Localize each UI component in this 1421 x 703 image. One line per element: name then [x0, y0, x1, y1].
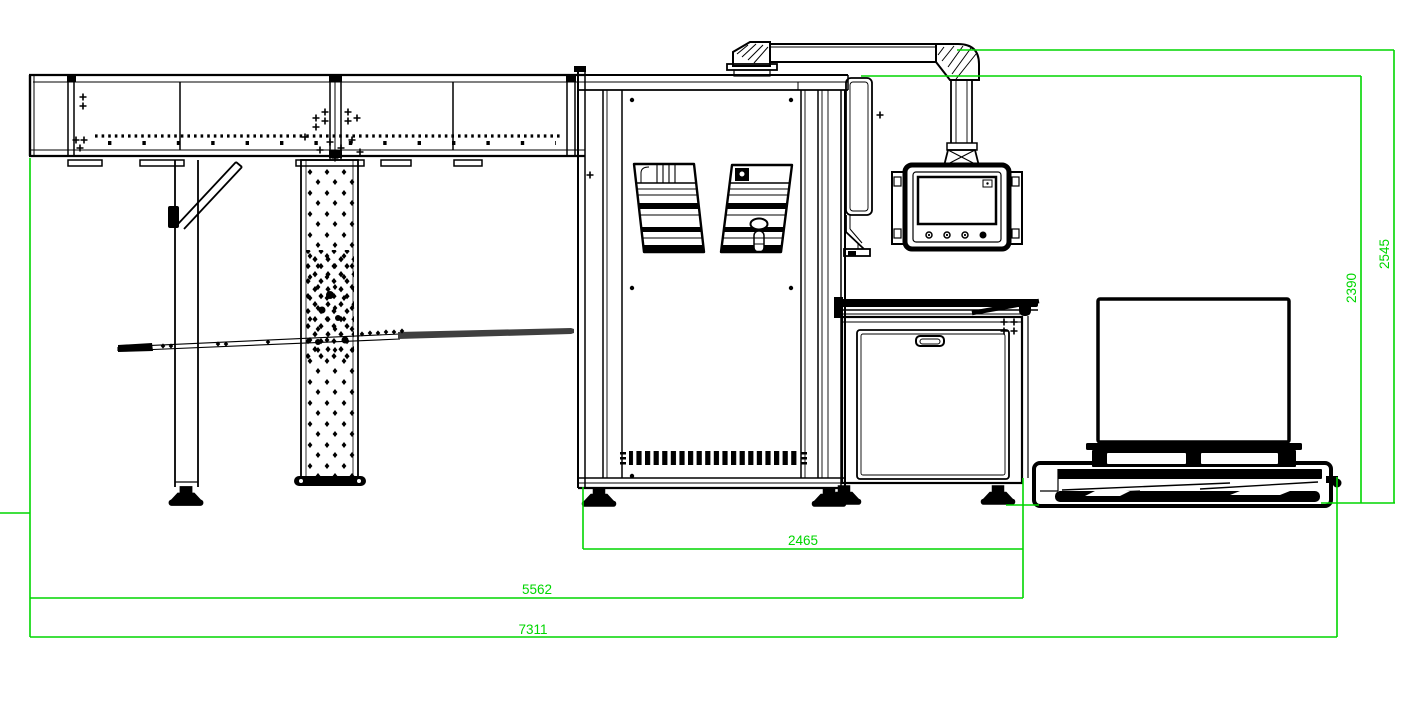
cabinet-door	[857, 330, 1009, 479]
dim-label-2465: 2465	[788, 533, 818, 548]
elevation-drawing: 2465 5562 7311 2390 2545	[0, 0, 1421, 703]
perforated-column	[294, 160, 366, 486]
hmi-monitor	[892, 165, 1022, 249]
ventilation-grille	[620, 451, 807, 465]
machine-foot-left	[583, 488, 616, 506]
hmi-screen	[918, 177, 996, 224]
cabinet-foot-right	[982, 486, 1015, 504]
leveling-foot	[170, 487, 203, 505]
pallet-platform	[1034, 463, 1342, 506]
lower-cabinet	[828, 317, 1023, 504]
side-panel	[844, 78, 872, 256]
pallet	[1086, 443, 1302, 467]
main-machine-cabinet	[574, 66, 884, 506]
infeed-conveyor	[29, 75, 585, 166]
diagonal-brace	[168, 162, 242, 229]
dim-label-5562: 5562	[522, 582, 552, 597]
cabinet-window-left	[620, 163, 730, 252]
cabinet-window-right	[705, 165, 810, 252]
blade-steel-bar	[398, 328, 574, 339]
carton-box	[1098, 299, 1289, 442]
hmi-buttons	[926, 232, 987, 239]
dim-label-2390: 2390	[1344, 273, 1359, 303]
drawing-canvas: 2465 5562 7311 2390 2545	[0, 0, 1421, 703]
dim-label-7311: 7311	[518, 622, 547, 637]
cable-duct	[727, 42, 979, 166]
dim-label-2545: 2545	[1377, 239, 1392, 269]
